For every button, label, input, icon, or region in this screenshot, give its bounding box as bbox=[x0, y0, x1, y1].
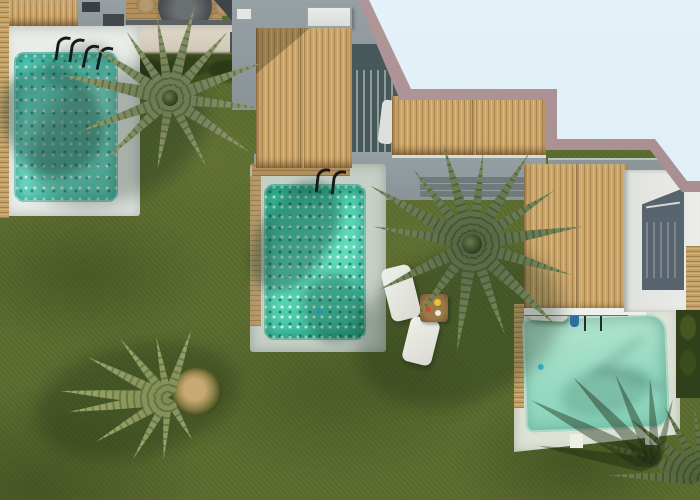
palm-crown bbox=[162, 90, 178, 106]
step-stone bbox=[570, 434, 583, 448]
palm-crown bbox=[462, 234, 482, 254]
roof-ridge bbox=[300, 28, 304, 168]
top-left-roof bbox=[0, 0, 80, 26]
roof-vent bbox=[306, 6, 352, 28]
food-plate bbox=[434, 299, 441, 306]
pool-drain bbox=[316, 308, 322, 314]
food-plate bbox=[435, 310, 441, 316]
pool-drain bbox=[538, 364, 544, 370]
hedge-right bbox=[676, 310, 700, 398]
villa3-courtyard bbox=[642, 188, 684, 290]
roof-ridge bbox=[576, 164, 580, 312]
pool2-water bbox=[264, 184, 366, 340]
aerial-photo bbox=[0, 0, 700, 500]
villa1-thatched-roof bbox=[256, 28, 352, 168]
villa2-thatched-roof bbox=[392, 96, 546, 158]
villa3-thatch-fence bbox=[686, 246, 700, 312]
courtyard-curtains bbox=[646, 222, 680, 278]
roof-ridge bbox=[472, 96, 476, 155]
led-strip bbox=[646, 202, 680, 209]
rooftop-unit bbox=[82, 2, 100, 12]
roof-vent-small bbox=[236, 8, 252, 20]
